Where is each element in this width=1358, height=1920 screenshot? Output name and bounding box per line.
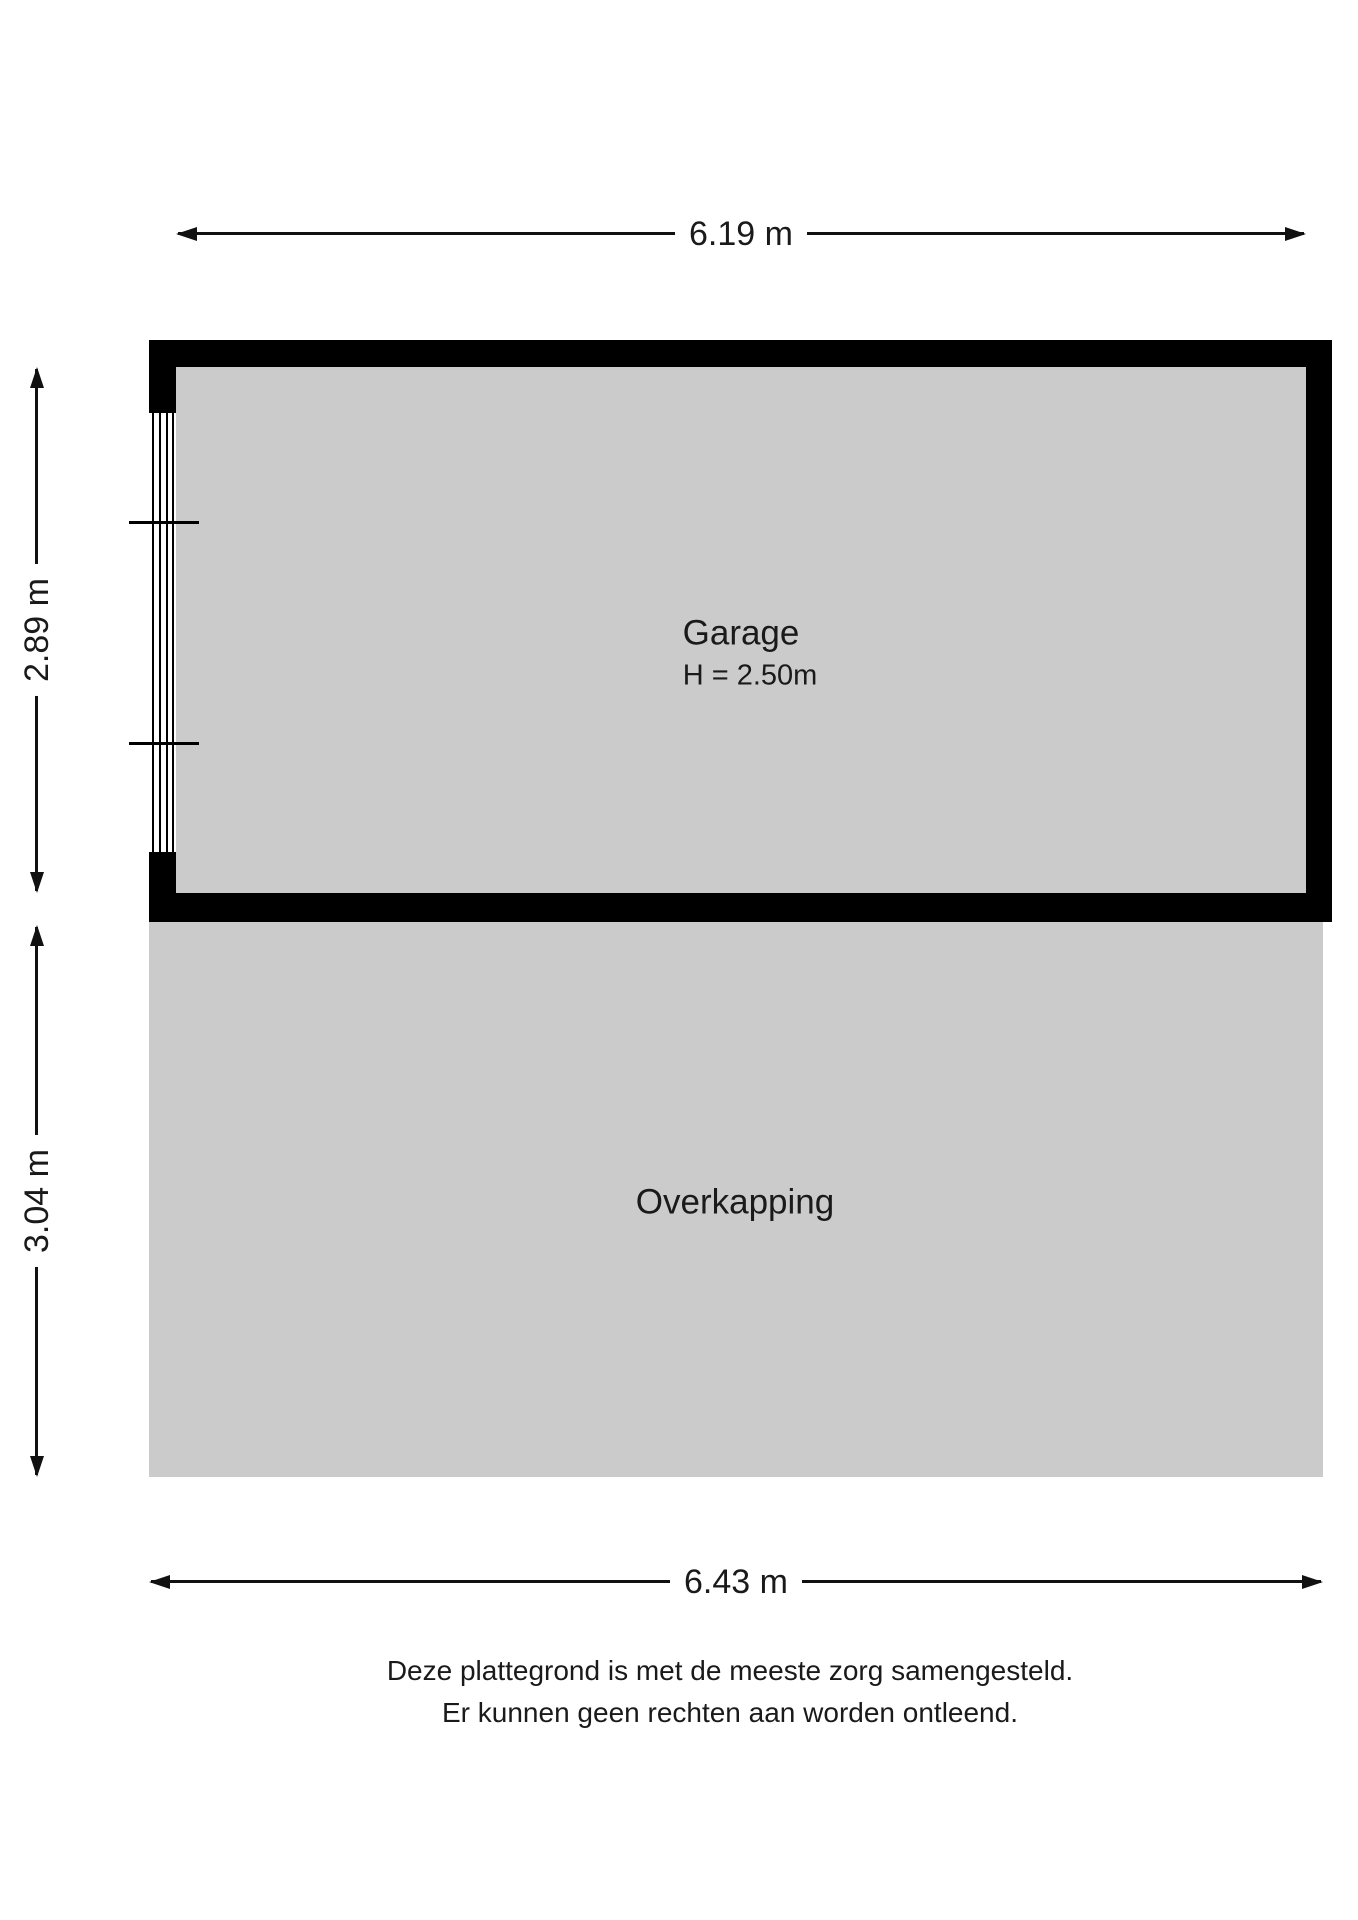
left-wall-window — [149, 413, 176, 852]
dimension-top-label: 6.19 m — [675, 214, 807, 254]
window-pane-line — [159, 413, 161, 852]
dimension-overkapping-depth-label: 3.04 m — [17, 1135, 57, 1267]
arrowhead-right-icon — [1285, 227, 1306, 241]
arrowhead-down-icon — [30, 872, 44, 893]
dimension-top: 6.19 m — [176, 216, 1306, 252]
window-tick-upper — [129, 521, 199, 524]
arrowhead-down-icon — [30, 1456, 44, 1477]
dimension-bottom-label: 6.43 m — [670, 1562, 802, 1602]
window-pane-line — [152, 413, 154, 852]
window-pane-line — [172, 413, 174, 852]
dimension-bottom: 6.43 m — [149, 1564, 1323, 1600]
window-pane-line — [166, 413, 168, 852]
footer-disclaimer-line1: Deze plattegrond is met de meeste zorg s… — [387, 1650, 1073, 1692]
floorplan-canvas: 6.19 m Garage H = 2.50m Overkapping 2.89… — [0, 0, 1358, 1920]
footer-disclaimer-line2: Er kunnen geen rechten aan worden ontlee… — [387, 1692, 1073, 1734]
arrowhead-left-icon — [149, 1575, 170, 1589]
arrowhead-up-icon — [30, 367, 44, 388]
arrowhead-right-icon — [1302, 1575, 1323, 1589]
arrowhead-up-icon — [30, 925, 44, 946]
garage-room-label: Garage — [683, 616, 800, 651]
footer-disclaimer: Deze plattegrond is met de meeste zorg s… — [387, 1650, 1073, 1734]
dimension-overkapping-depth: 3.04 m — [19, 925, 55, 1477]
garage-ceiling-height-label: H = 2.50m — [683, 662, 818, 691]
overkapping-room-label: Overkapping — [636, 1185, 834, 1220]
dimension-garage-depth: 2.89 m — [19, 367, 55, 893]
dimension-garage-depth-label: 2.89 m — [17, 564, 57, 696]
arrowhead-left-icon — [176, 227, 197, 241]
window-tick-lower — [129, 742, 199, 745]
